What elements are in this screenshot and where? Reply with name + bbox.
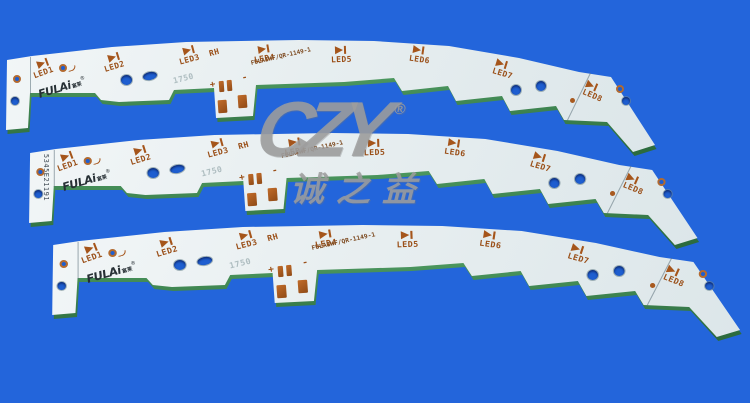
mounting-hole [549, 178, 559, 188]
mounting-hole [705, 282, 713, 290]
vscore-line [54, 150, 55, 187]
plus-polarity-mark: + [267, 265, 275, 276]
test-point-ring [108, 249, 116, 257]
plus-polarity-mark: + [238, 173, 246, 184]
copper-dot [650, 283, 655, 288]
mounting-hole [121, 75, 132, 85]
brand-text: FULAi [37, 79, 73, 101]
mounting-hole [34, 190, 42, 198]
mounting-hole-ring [699, 270, 707, 278]
diode-icon [368, 139, 382, 147]
led-label: LED5 [331, 55, 352, 65]
mounting-hole-ring [60, 260, 68, 268]
solder-pad [248, 174, 254, 185]
brand-text: FULAi [61, 172, 98, 194]
mounting-hole [536, 81, 546, 91]
vscore-line [30, 57, 31, 94]
solder-pad [256, 173, 262, 184]
mounting-hole [614, 266, 625, 276]
test-point-ring [59, 64, 67, 72]
mounting-hole [11, 97, 19, 105]
pcb-face [50, 218, 750, 343]
plus-polarity-mark: + [209, 80, 216, 91]
solder-pad [276, 285, 286, 299]
solder-pad [247, 193, 257, 207]
mounting-hole-ring [13, 75, 21, 83]
vscore-line [78, 242, 79, 279]
copper-dot [570, 98, 575, 103]
mounting-hole [511, 85, 521, 95]
mounting-hole [174, 260, 186, 270]
mounting-hole [575, 174, 585, 184]
serial-number: 5345E21191 [39, 147, 50, 209]
solder-pad [286, 265, 292, 276]
mounting-hole-ring [616, 85, 624, 93]
led-label: LED5 [396, 240, 418, 250]
test-point-ring [84, 157, 92, 165]
solder-pad [268, 188, 278, 202]
pcb-board: LED1 FULAi富莱® LED2 LED3 RH 1750 + - LED4… [50, 218, 750, 348]
brand-chinese-text: 富莱 [96, 174, 108, 183]
mounting-hole [622, 97, 630, 105]
brand-chinese-text: 富莱 [121, 266, 133, 275]
mounting-hole [587, 270, 598, 280]
diode-icon [401, 231, 415, 239]
diode-icon [335, 46, 348, 54]
led-label: LED5 [364, 148, 386, 158]
solder-pad [218, 100, 228, 114]
brand-chinese-text: 富莱 [71, 81, 82, 90]
mounting-hole [664, 190, 672, 198]
solder-pad [219, 81, 225, 92]
mounting-hole-ring [36, 168, 44, 176]
solder-pad [277, 266, 283, 277]
mounting-hole [57, 282, 65, 290]
mounting-hole-ring [657, 178, 665, 186]
solder-pad [238, 95, 248, 109]
pcb-product-photo: LED1 FULAi富莱® LED2 LED3 RH 1750 + - LED4… [0, 0, 750, 403]
mounting-hole [148, 168, 159, 178]
solder-pad [227, 80, 233, 91]
brand-text: FULAi [85, 264, 123, 286]
copper-dot [610, 191, 615, 196]
solder-pad [298, 280, 308, 294]
